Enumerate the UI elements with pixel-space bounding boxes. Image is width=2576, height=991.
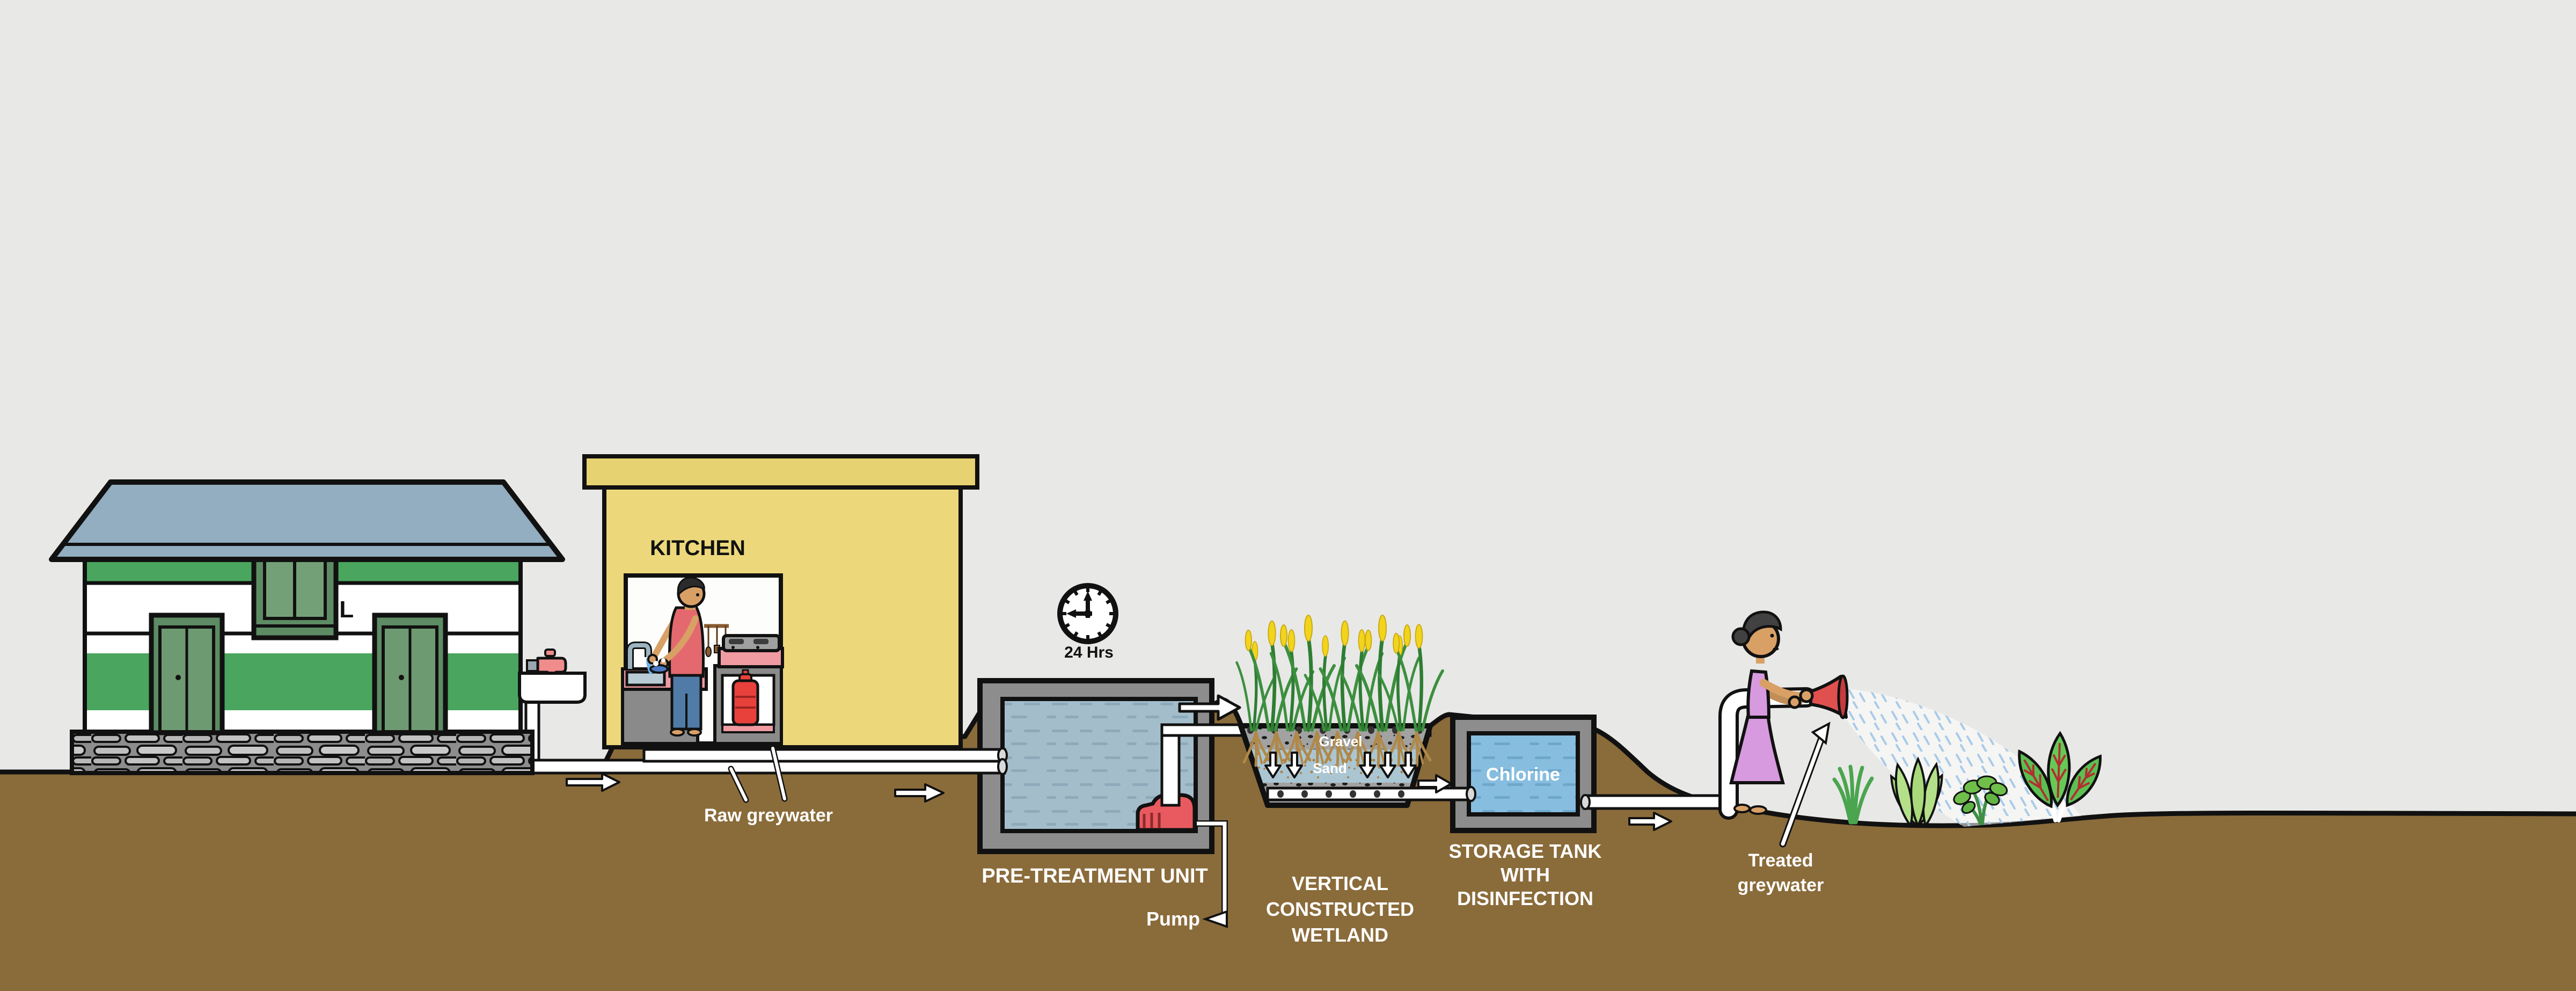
clock-label: 24 Hrs [1064, 644, 1114, 661]
treated-greywater-line1: Treated [1748, 850, 1813, 871]
school-door-left [151, 615, 222, 733]
tap-wall-stub [527, 660, 538, 671]
man-foot [688, 729, 701, 735]
wetland-label-line2: CONSTRUCTED [1266, 898, 1414, 920]
treated-greywater-line2: greywater [1738, 875, 1824, 895]
kitchen-building: KITCHEN [584, 456, 977, 747]
kitchen-greywater-pipe [644, 749, 1005, 761]
kitchen-stove-unit [715, 636, 782, 744]
school-building: SCHOOL [52, 482, 585, 773]
gravel-label: Gravel [1319, 733, 1363, 749]
school-outdoor-sink [519, 673, 585, 702]
pretreatment-label: PRE-TREATMENT UNIT [982, 865, 1208, 887]
clock-center [1084, 610, 1092, 617]
pipe-outlet-cap [1467, 787, 1475, 801]
sand-label: Sand [1313, 760, 1347, 776]
storage-label-line1: STORAGE TANK [1449, 840, 1602, 862]
tap-handle [545, 650, 555, 656]
retention-time-clock: 24 Hrs [1060, 586, 1116, 661]
greywater-treatment-diagram: SCHOOL [0, 0, 2576, 991]
woman-torso [1748, 671, 1769, 717]
pump-label: Pump [1146, 908, 1200, 930]
pipe-inlet-cap [1581, 795, 1590, 809]
stove-burner [729, 639, 744, 644]
door-handle [175, 675, 181, 680]
kitchen-cutaway-interior [623, 575, 782, 744]
man-eye [696, 593, 699, 596]
nozzle-mouth [1839, 676, 1847, 718]
pump-riser-pipe [1162, 730, 1179, 805]
school-stone-foundation [72, 732, 532, 773]
stove-knob [731, 646, 735, 649]
wetland-label-line1: VERTICAL [1292, 872, 1388, 894]
sink-basin [519, 673, 585, 702]
stove-burner [753, 639, 769, 644]
stove-knob [756, 646, 759, 649]
pipe-outlet-cap [998, 759, 1007, 774]
school-roof [52, 482, 562, 559]
door-handle [399, 675, 404, 680]
woman-hand [1789, 697, 1800, 708]
school-door-right [375, 615, 445, 733]
chlorine-label: Chlorine [1486, 764, 1560, 785]
sink-basin-hole [627, 672, 664, 685]
woman-hand [1801, 690, 1812, 702]
storage-label-line2: WITH [1501, 864, 1550, 886]
soap-foam [653, 661, 658, 666]
woman-eye [1770, 634, 1774, 638]
diagram-canvas: SCHOOL [0, 0, 2576, 991]
man-foot [671, 729, 684, 735]
woman-hair-bun [1733, 629, 1749, 645]
soap-foam [661, 658, 665, 662]
treated-water-pipe [1584, 796, 1722, 808]
woman-foot [1735, 805, 1750, 812]
gas-cylinder [733, 681, 758, 725]
kitchen-label: KITCHEN [650, 536, 745, 560]
woman-foot [1750, 806, 1766, 814]
dish [650, 665, 668, 673]
storage-label-line3: DISINFECTION [1457, 887, 1593, 909]
raw-greywater-label: Raw greywater [704, 805, 833, 826]
wetland-label-line3: WETLAND [1292, 924, 1388, 946]
kitchen-roof [584, 456, 977, 487]
